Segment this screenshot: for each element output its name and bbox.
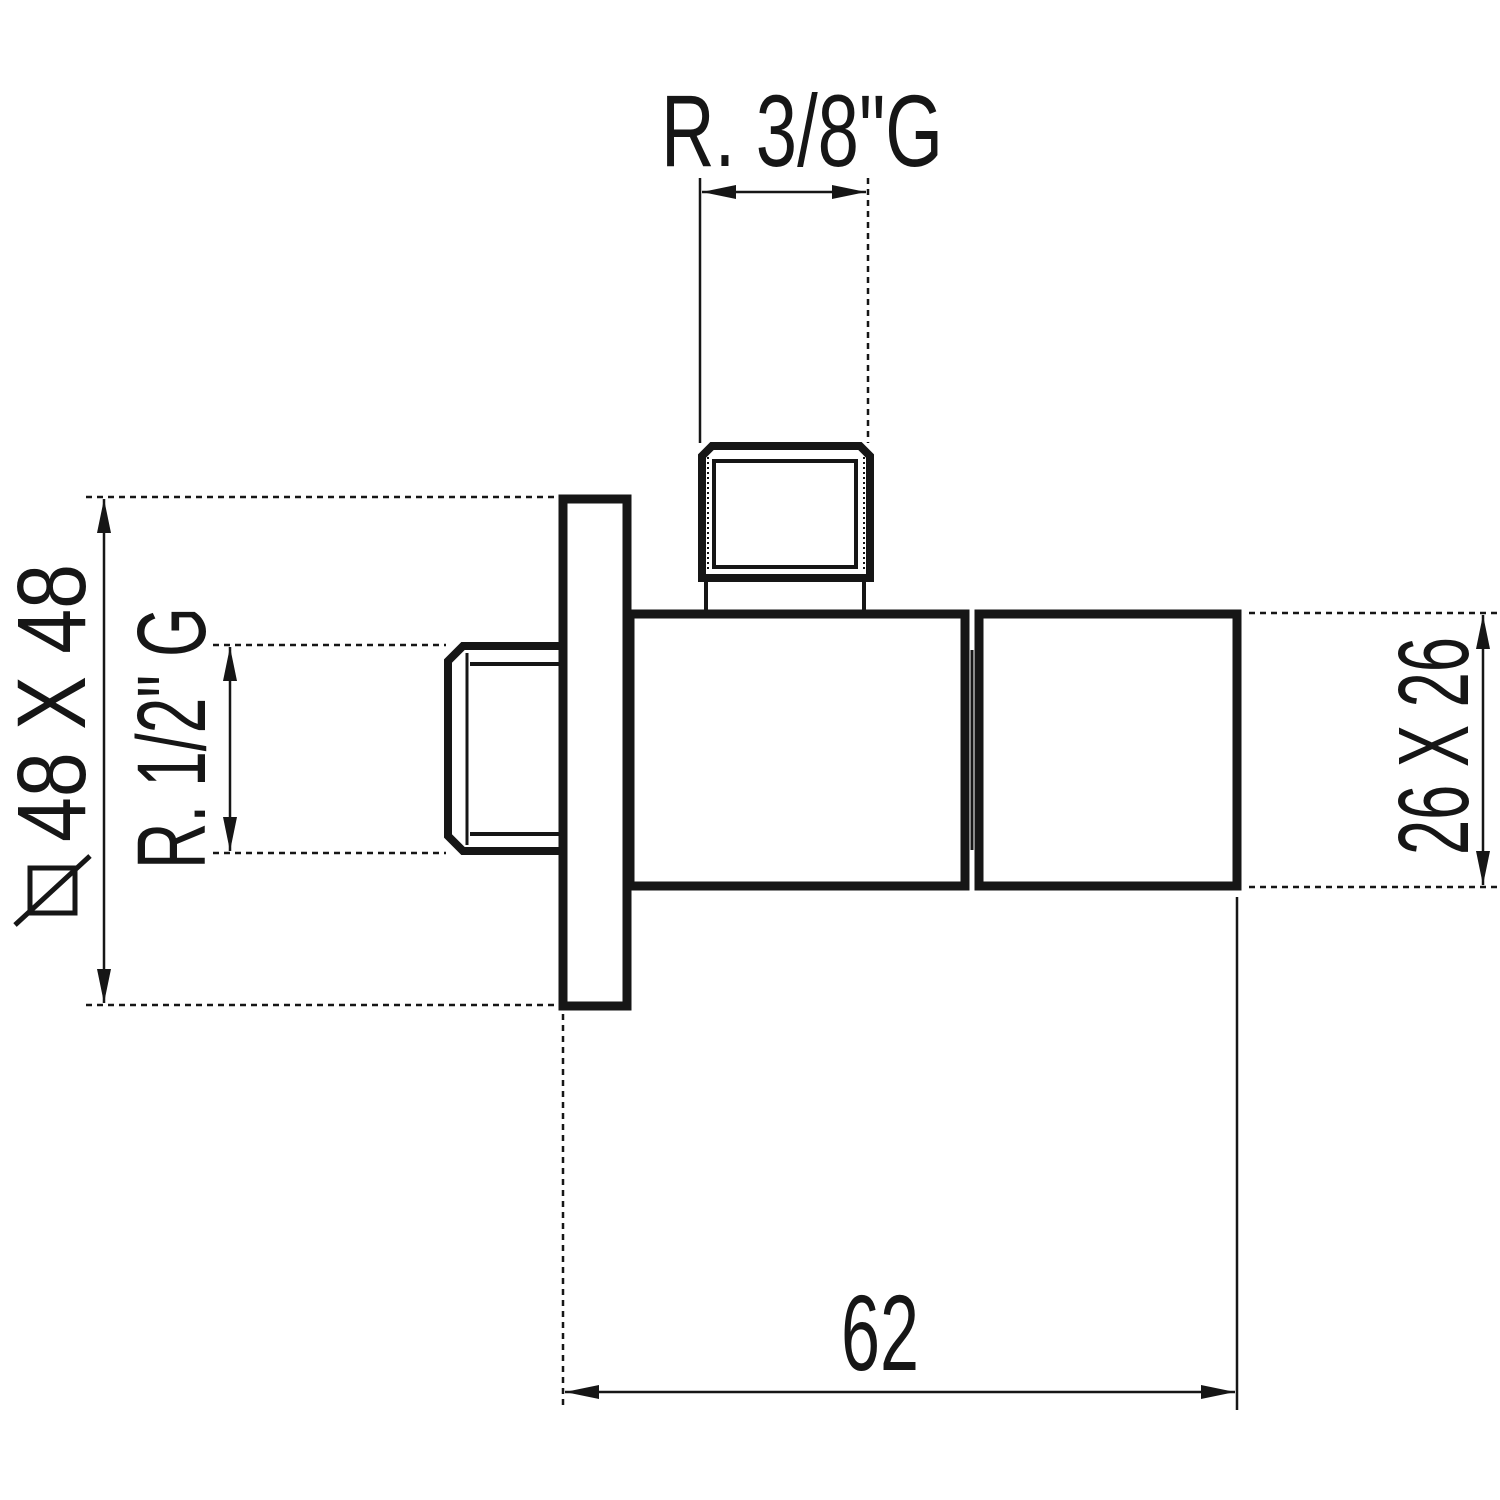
plate-dim-label: 48 X 48 (0, 564, 106, 842)
wall-plate (563, 499, 627, 1006)
top-dim-label: R. 3/8"G (661, 74, 943, 188)
top-connector-outline (702, 446, 870, 578)
plate-dim-arrow-down (97, 969, 111, 1003)
depth-dim-arrow-left (565, 1385, 599, 1399)
valve-handle (979, 614, 1237, 886)
square-section-icon (15, 856, 90, 925)
handle-dim-arrow-down (1476, 851, 1490, 885)
drawing-canvas: R. 3/8"G 48 X 48 R. 1/2" G 26 X 26 62 (0, 0, 1500, 1500)
plate-dim-arrow-up (97, 499, 111, 533)
depth-dim-arrow-right (1201, 1385, 1235, 1399)
valve-body (630, 614, 965, 886)
depth-dim-label: 62 (841, 1272, 919, 1393)
inlet-dim-label: R. 1/2" G (117, 607, 226, 869)
technical-drawing: R. 3/8"G 48 X 48 R. 1/2" G 26 X 26 62 (0, 0, 1500, 1500)
handle-dim-label: 26 X 26 (1378, 637, 1490, 855)
